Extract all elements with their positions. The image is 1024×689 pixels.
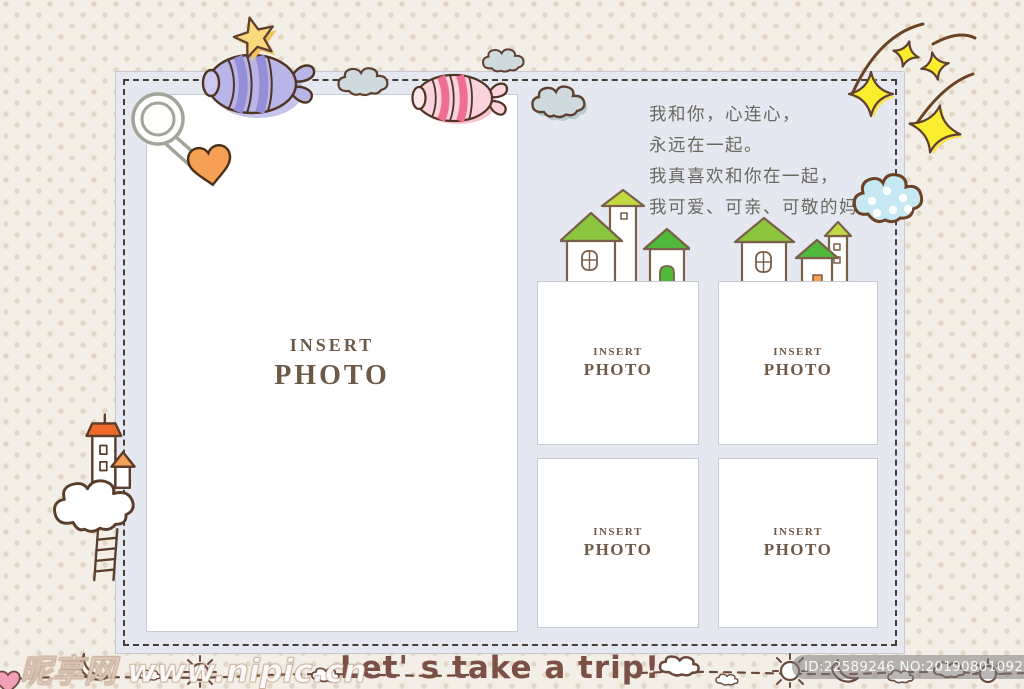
lighthouse-icon bbox=[50, 404, 150, 588]
photo-label: PHOTO bbox=[584, 540, 653, 560]
bottom-caption: Let' s take a trip! bbox=[340, 650, 660, 686]
star-icon bbox=[228, 13, 282, 63]
insert-label: INSERT bbox=[593, 526, 643, 538]
photo-label: PHOTO bbox=[274, 360, 390, 392]
insert-label: INSERT bbox=[593, 346, 643, 358]
photo-label: PHOTO bbox=[764, 540, 833, 560]
insert-label: INSERT bbox=[773, 346, 823, 358]
insert-label: INSERT bbox=[290, 335, 374, 356]
photo-placeholder-1[interactable]: INSERT PHOTO bbox=[537, 281, 699, 445]
cloud-icon bbox=[528, 80, 590, 122]
cloud-icon bbox=[336, 64, 394, 98]
page-background: INSERT PHOTO INSERT PHOTO INSERT PHOTO I… bbox=[0, 0, 1024, 689]
insert-label: INSERT bbox=[773, 526, 823, 538]
safety-pin-icon bbox=[124, 87, 236, 193]
photo-label: PHOTO bbox=[764, 360, 833, 380]
cloud-icon bbox=[481, 42, 529, 78]
photo-placeholder-3[interactable]: INSERT PHOTO bbox=[537, 458, 699, 628]
site-watermark: 昵享网 www.nipic.cn bbox=[20, 646, 366, 689]
photo-label: PHOTO bbox=[584, 360, 653, 380]
photo-placeholder-2[interactable]: INSERT PHOTO bbox=[718, 281, 878, 445]
dotted-cloud-icon bbox=[850, 162, 930, 228]
photo-placeholder-4[interactable]: INSERT PHOTO bbox=[718, 458, 878, 628]
sparkle-stars-icon bbox=[843, 14, 983, 154]
pink-candy-icon bbox=[410, 70, 510, 126]
stock-id-badge: ID:22589246 NO:20190801092747866083 bbox=[792, 655, 1024, 679]
houses-icon bbox=[734, 216, 852, 284]
